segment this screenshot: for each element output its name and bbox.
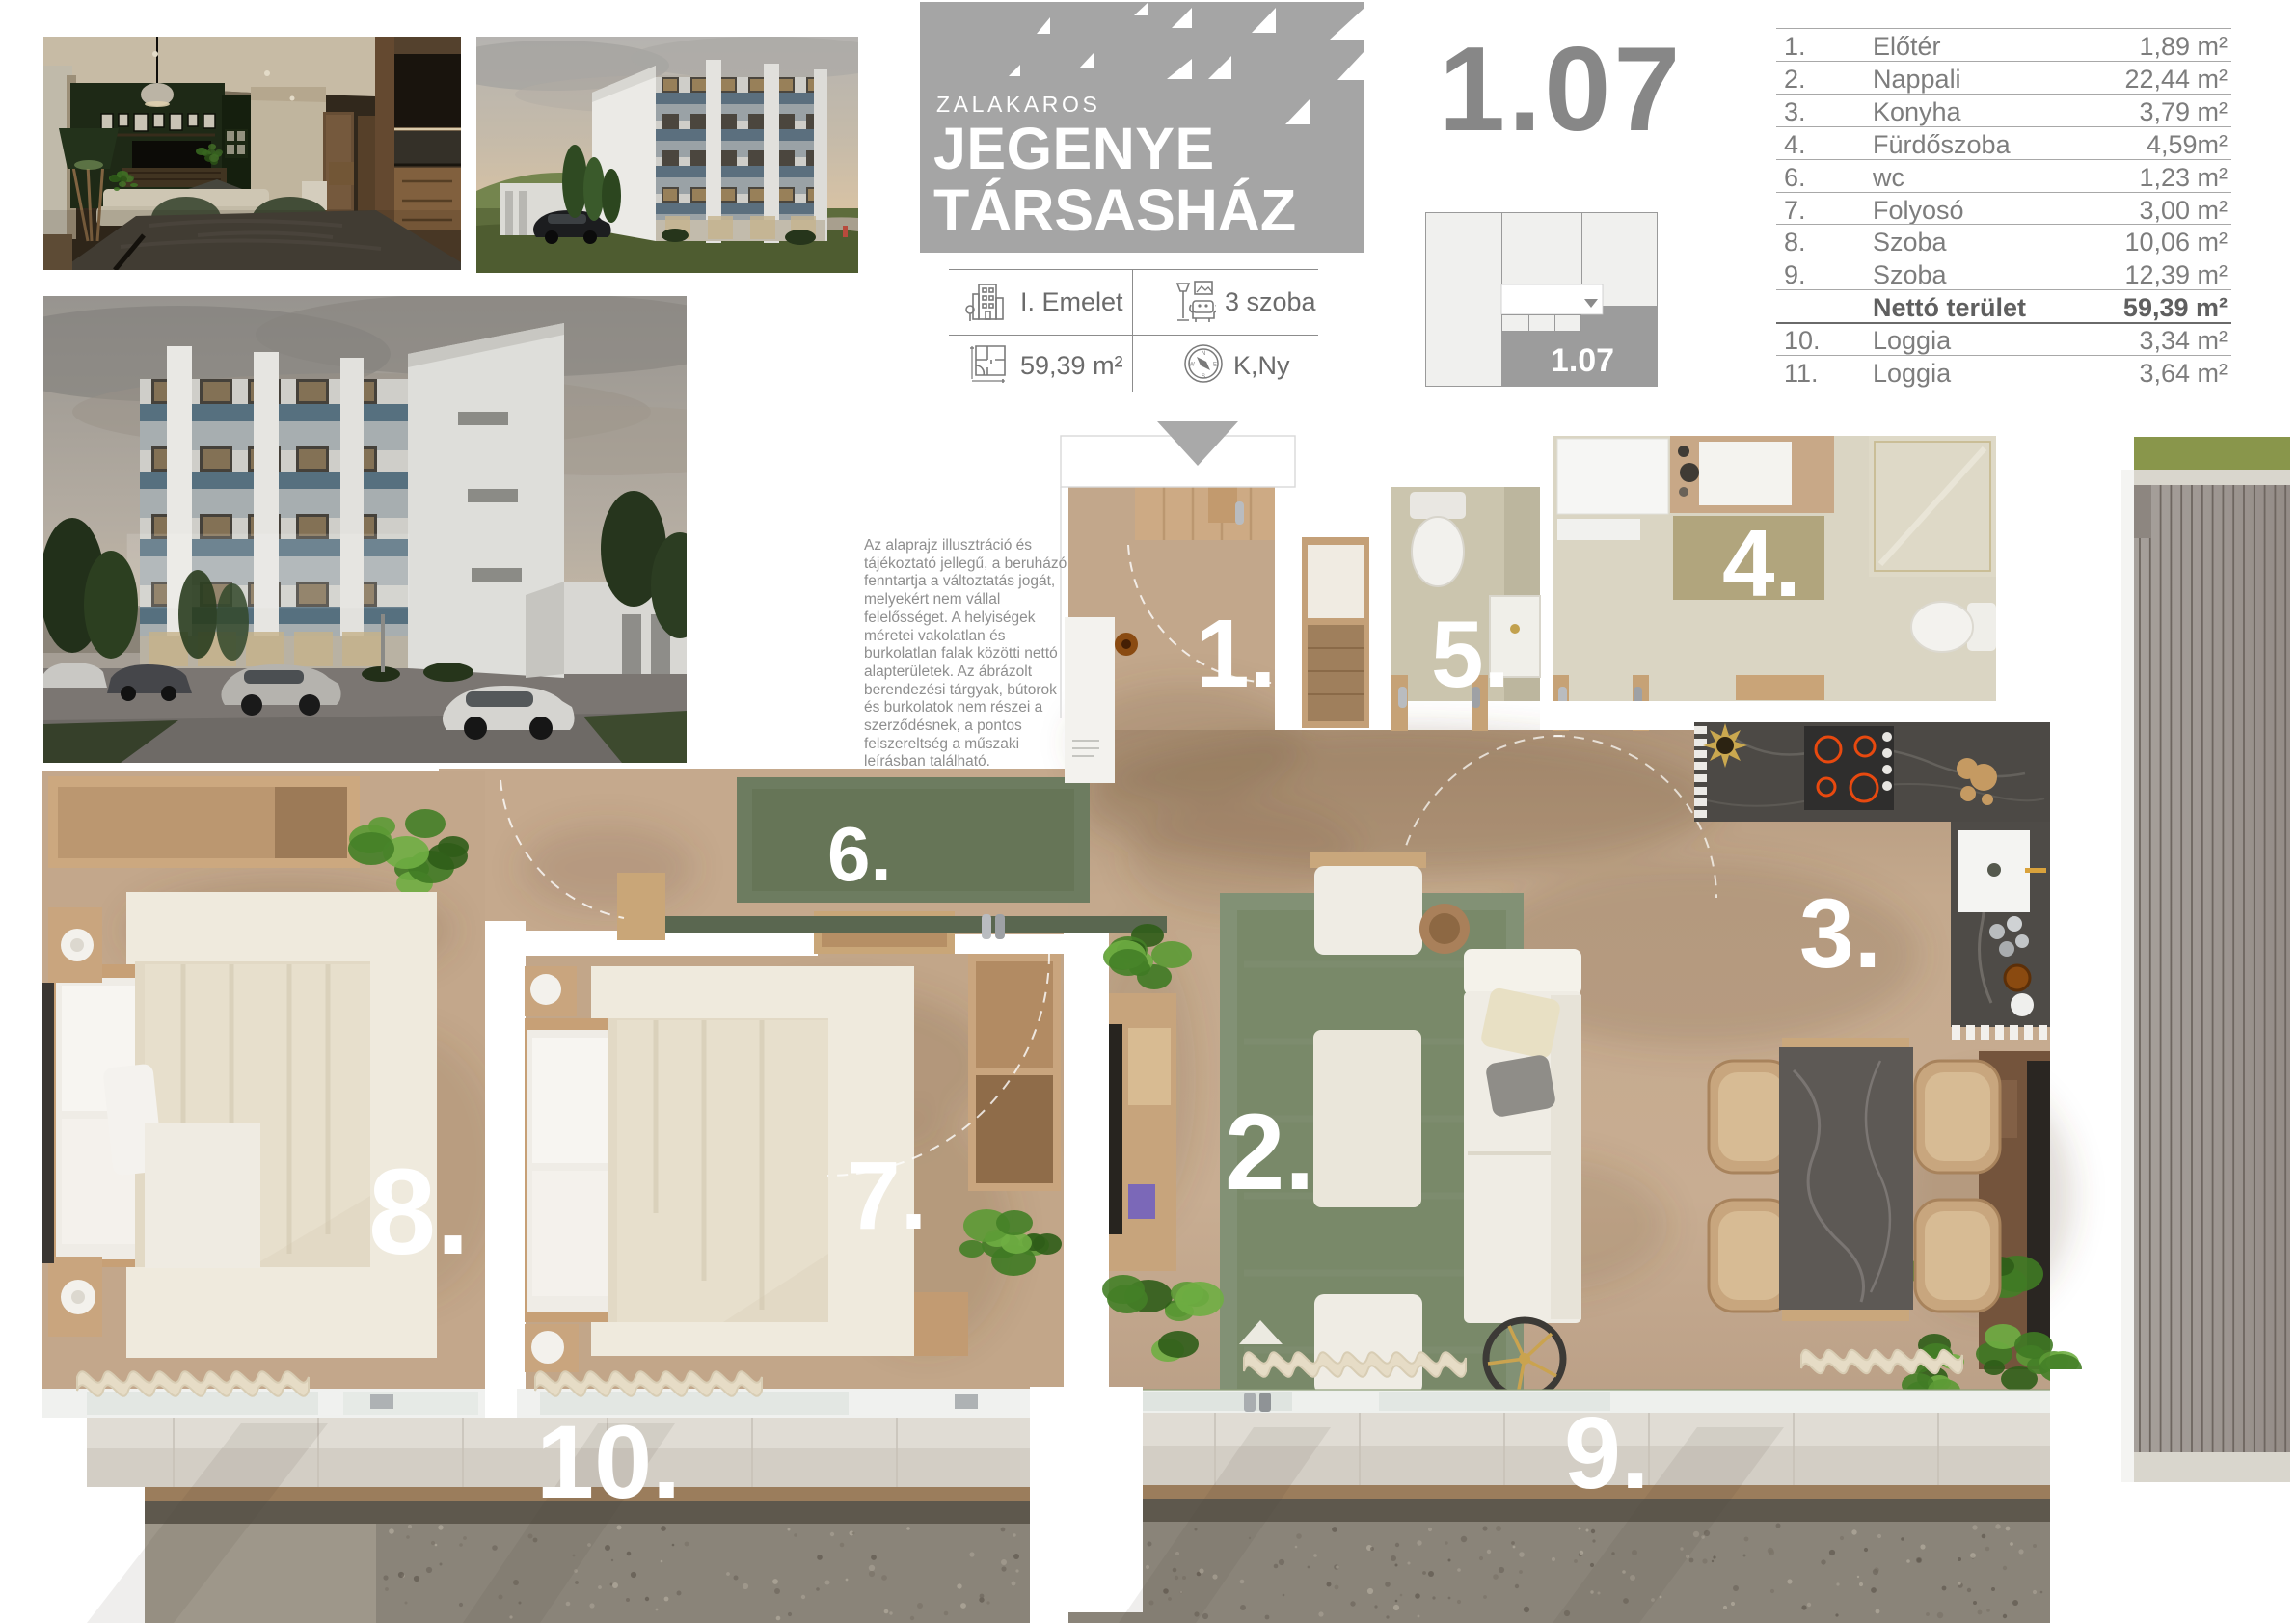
svg-text:4.: 4. xyxy=(1722,510,1801,616)
svg-text:E: E xyxy=(1213,363,1217,368)
svg-text:7.: 7. xyxy=(847,1142,927,1250)
svg-text:1.: 1. xyxy=(1196,600,1276,708)
svg-text:9.: 9. xyxy=(1564,1396,1649,1510)
svg-text:3.: 3. xyxy=(1799,879,1881,988)
svg-text:1.07: 1.07 xyxy=(1551,342,1614,379)
svg-text:W: W xyxy=(1189,363,1195,368)
svg-text:2.: 2. xyxy=(1225,1092,1314,1212)
svg-text:10.: 10. xyxy=(536,1403,681,1520)
svg-text:5.: 5. xyxy=(1431,601,1510,707)
svg-text:S: S xyxy=(1202,374,1205,380)
svg-text:N: N xyxy=(1202,351,1205,357)
svg-text:8.: 8. xyxy=(368,1144,470,1280)
svg-text:6.: 6. xyxy=(827,811,892,897)
